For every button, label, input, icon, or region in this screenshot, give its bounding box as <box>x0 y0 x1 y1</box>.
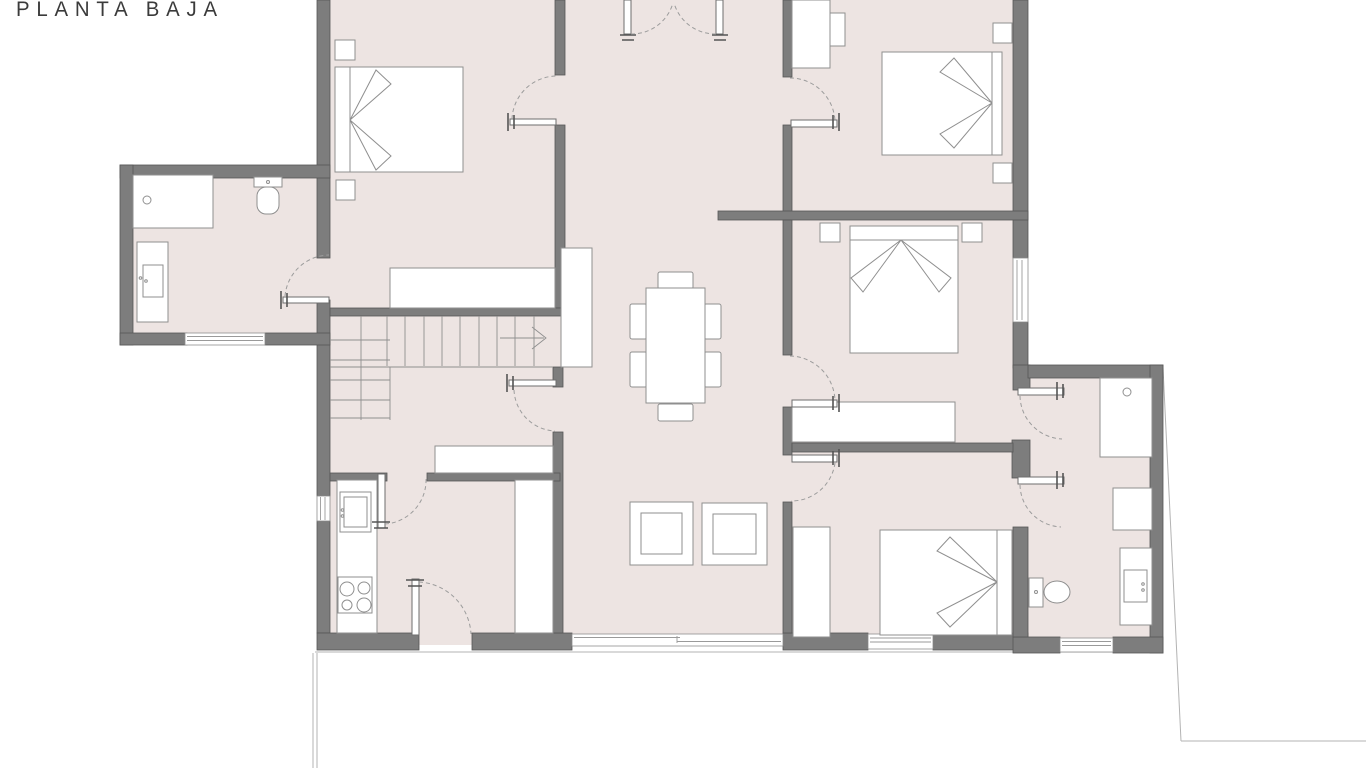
annex-wall-bottom-r <box>265 333 330 345</box>
wall-living-bed3-a <box>783 220 792 355</box>
chair <box>704 352 721 387</box>
dresser <box>792 402 955 442</box>
wall-left-bath <box>317 170 330 258</box>
stove-burners <box>338 577 372 613</box>
chair <box>630 304 647 339</box>
double-bed <box>850 226 958 353</box>
wing-wall-left-top <box>1013 365 1030 390</box>
wardrobe-shelf <box>830 13 845 46</box>
double-bed <box>880 530 1012 635</box>
wall-bed3-bed4 <box>792 443 1013 452</box>
shower-tray <box>1100 378 1152 457</box>
wall-bed1-hall-a <box>555 0 565 75</box>
window-bedroom4 <box>868 634 933 649</box>
nightstand <box>335 40 355 60</box>
plan-title: PLANTA BAJA <box>16 0 224 22</box>
nightstand <box>993 163 1012 183</box>
bedroom-bottom-right <box>793 527 1012 637</box>
annex-wall-left <box>120 165 133 345</box>
wall-hall-bed2-a <box>783 0 792 77</box>
double-bed <box>335 67 463 172</box>
wall-bed1-stairs <box>330 308 565 316</box>
vanity-sink <box>137 242 168 322</box>
chair <box>658 404 693 421</box>
wing-wall-bottom-l <box>1013 637 1060 653</box>
wall-living-bed3-pillar <box>783 407 792 455</box>
dining-table <box>646 288 705 403</box>
wall-left-lower <box>317 521 330 633</box>
wall-bed2-bed3 <box>718 211 1028 220</box>
fridge-pantry <box>515 480 553 633</box>
square-seat <box>702 503 767 565</box>
window-annex-bath <box>185 333 265 345</box>
wing-wall-left-lower <box>1013 527 1028 637</box>
window-kitchen <box>317 496 330 521</box>
chair <box>704 304 721 339</box>
tv-sideboard <box>561 248 592 367</box>
nightstand <box>820 223 840 242</box>
vanity-sink <box>1120 548 1152 625</box>
bathtub <box>133 175 213 228</box>
wall-left-upper <box>317 0 330 170</box>
floor-plan-canvas <box>0 0 1366 768</box>
window-wing-bath <box>1060 638 1113 652</box>
wall-bottom-kitchen <box>317 633 419 650</box>
sliding-glass-door <box>572 634 783 646</box>
cabinet <box>1113 488 1152 530</box>
chair <box>630 352 647 387</box>
wall-living-bed4 <box>783 502 792 633</box>
nightstand <box>993 23 1012 43</box>
wall-hall-bed2-b <box>783 125 792 215</box>
wall-stairs-living-b <box>553 432 563 633</box>
square-seat <box>630 502 693 565</box>
nightstand <box>336 180 355 200</box>
window-bedroom3 <box>1013 258 1028 322</box>
wall-right-mid <box>1013 322 1028 368</box>
wing-wall-bottom-r <box>1113 637 1163 653</box>
nightstand <box>962 223 982 242</box>
kitchen-sink <box>340 492 371 532</box>
wing-door-pillar <box>1012 440 1030 478</box>
wall-left-mid <box>317 300 330 496</box>
chair <box>658 272 693 289</box>
wardrobe <box>792 0 830 68</box>
toilet <box>254 177 282 214</box>
annex-wall-bottom-l <box>120 333 187 345</box>
double-bed <box>882 52 1002 155</box>
wardrobe <box>793 527 830 637</box>
wall-bottom-hall <box>472 633 572 650</box>
wing-wall-top <box>1028 365 1163 378</box>
floor-plan-page: PLANTA BAJA <box>0 0 1366 768</box>
wardrobe <box>390 268 555 308</box>
hall-console <box>435 446 553 473</box>
plot-diagonal <box>1163 368 1181 741</box>
